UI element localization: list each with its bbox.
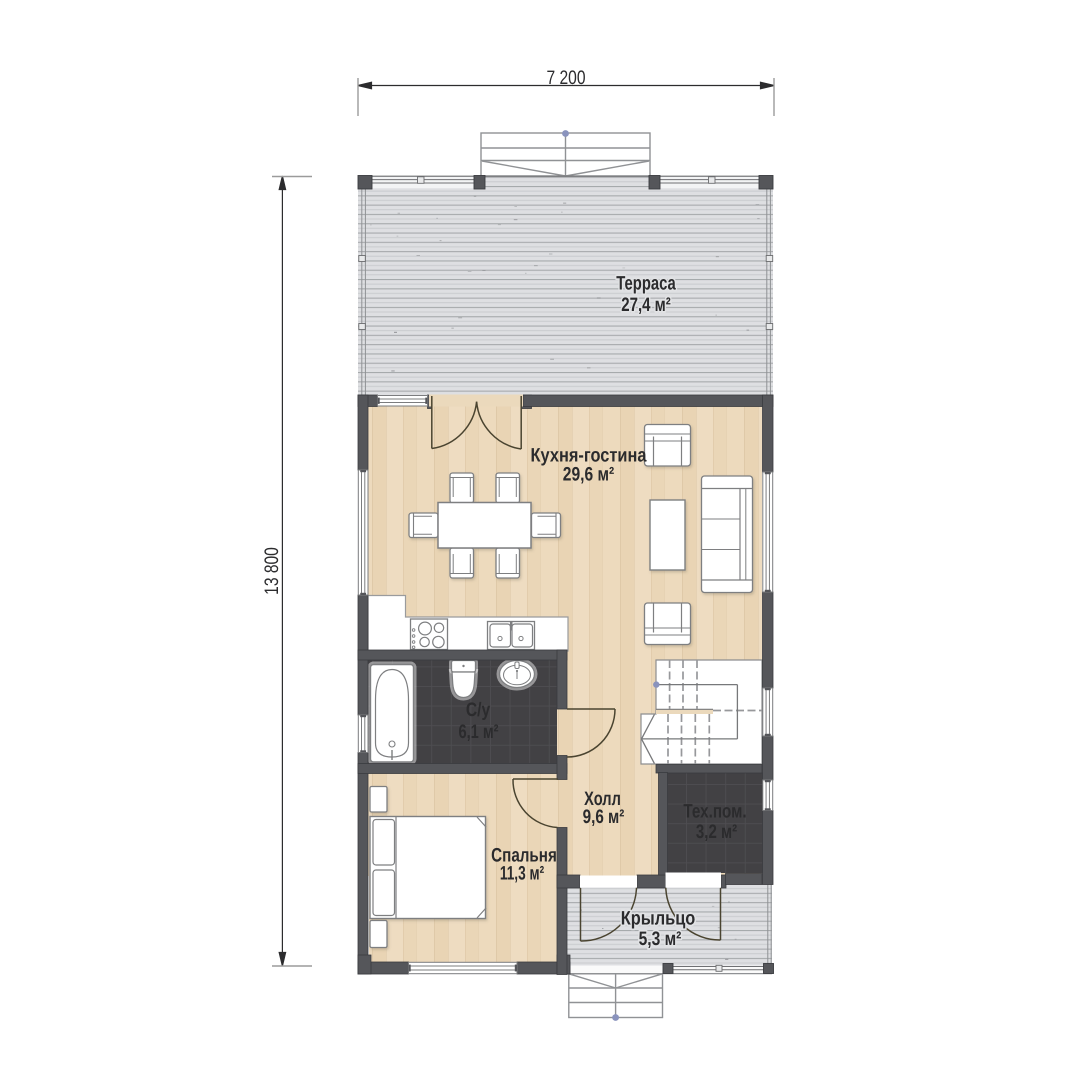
svg-text:Терраса: Терраса — [616, 273, 676, 295]
svg-text:13 800: 13 800 — [261, 547, 283, 595]
svg-text:Тех.пом.: Тех.пом. — [683, 801, 746, 823]
svg-text:5,3 м²: 5,3 м² — [639, 928, 682, 950]
svg-text:11,3 м²: 11,3 м² — [500, 863, 545, 885]
svg-text:27,4 м²: 27,4 м² — [621, 294, 671, 316]
svg-text:Крыльцо: Крыльцо — [621, 908, 696, 930]
svg-text:С/у: С/у — [466, 699, 490, 721]
svg-text:6,1 м²: 6,1 м² — [458, 721, 498, 743]
svg-text:7 200: 7 200 — [546, 67, 585, 89]
svg-text:3,2 м²: 3,2 м² — [696, 821, 738, 843]
svg-text:9,6 м²: 9,6 м² — [583, 806, 625, 828]
svg-text:29,6 м²: 29,6 м² — [563, 464, 615, 486]
